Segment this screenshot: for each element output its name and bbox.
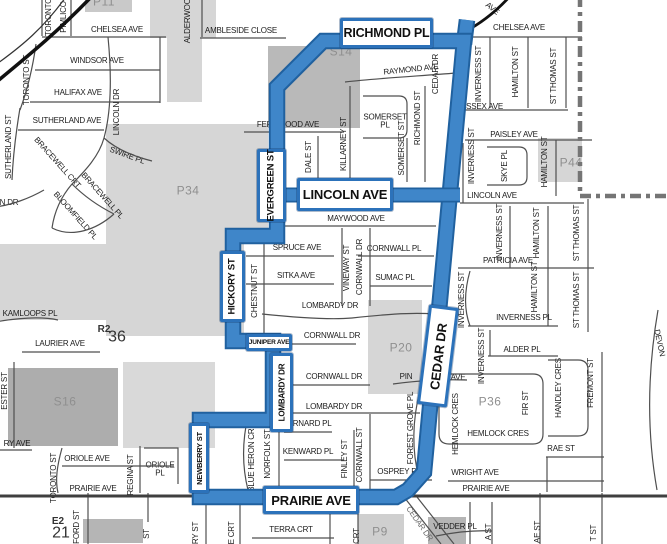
route-sign-richmond-pl: RICHMOND PL <box>340 18 433 48</box>
route-sign-label: RICHMOND PL <box>344 26 430 40</box>
route-sign-label: HICKORY ST <box>227 258 238 314</box>
route-sign-label: LOMBARDY DR <box>277 364 286 422</box>
route-sign-newberry-st: NEWBERRY ST <box>189 423 209 493</box>
route-sign-label: JUNIPER AVE <box>249 339 289 346</box>
route-sign-label: NEWBERRY ST <box>195 432 204 485</box>
route-sign-cedar-dr: CEDAR DR <box>417 305 459 408</box>
route-sign-lombardy-dr: LOMBARDY DR <box>270 353 293 432</box>
route-sign-label: EVERGREEN ST <box>266 149 277 221</box>
route-sign-prairie-ave: PRAIRIE AVE <box>263 486 359 514</box>
route-sign-label: CEDAR DR <box>426 322 449 390</box>
route-sign-juniper-ave: JUNIPER AVE <box>246 334 292 351</box>
map-canvas: P11TORONTOPIMLICOCHELSEA AVEALDERWOODAMB… <box>0 0 667 544</box>
route-sign-label: LINCOLN AVE <box>303 187 387 202</box>
route-street-signs: RICHMOND PLLINCOLN AVEPRAIRIE AVEEVERGRE… <box>0 0 667 544</box>
route-sign-hickory-st: HICKORY ST <box>220 251 245 322</box>
route-sign-label: PRAIRIE AVE <box>271 493 350 508</box>
route-sign-lincoln-ave: LINCOLN AVE <box>297 178 393 211</box>
route-sign-evergreen-st: EVERGREEN ST <box>257 149 286 222</box>
